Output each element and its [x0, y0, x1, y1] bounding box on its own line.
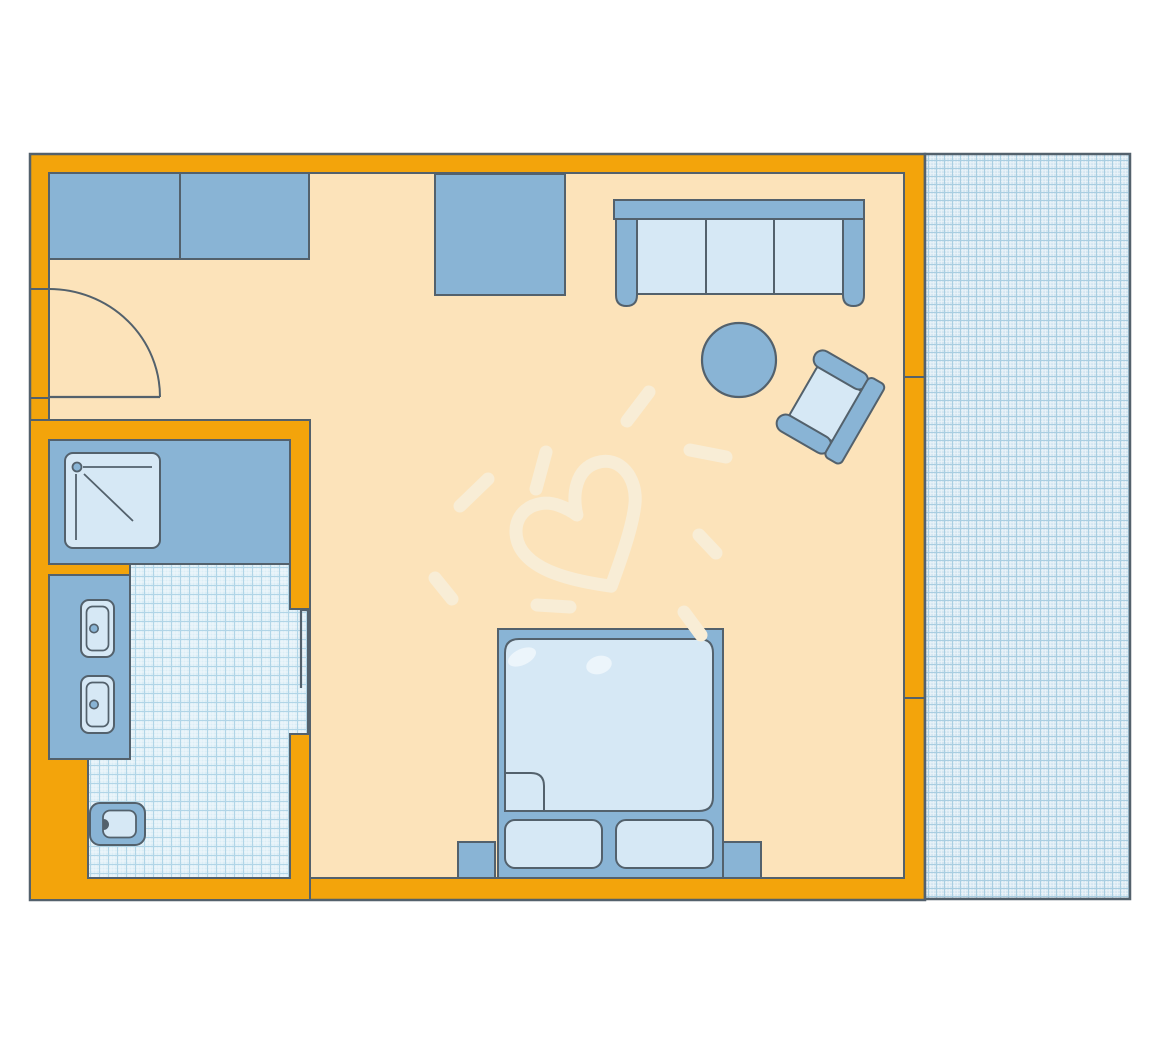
floor-plan [0, 0, 1161, 1057]
balcony-floor [925, 154, 1130, 899]
washbasin-top [81, 600, 114, 657]
sofa-cushion [637, 219, 706, 294]
nightstand-left [458, 842, 495, 878]
sofa-cushion [706, 219, 774, 294]
shower-tray [65, 453, 160, 548]
nightstand-right [723, 842, 761, 878]
sofa [614, 200, 864, 306]
toilet [90, 803, 145, 845]
sofa-cushion [774, 219, 843, 294]
sofa-backrest [614, 200, 864, 219]
washbasin-bottom [81, 676, 114, 733]
bed-group [458, 629, 761, 878]
floor-plan-canvas [0, 0, 1161, 1057]
pillow-left [505, 820, 602, 868]
pillow-right [616, 820, 713, 868]
wardrobe [49, 173, 309, 259]
coffee-table [702, 323, 776, 397]
desk [435, 174, 565, 295]
drain-icon [90, 700, 98, 708]
drain-icon [90, 624, 98, 632]
sofa-armrest-right [843, 219, 864, 306]
sofa-armrest-left [616, 219, 637, 306]
shower-drain-icon [73, 463, 82, 472]
